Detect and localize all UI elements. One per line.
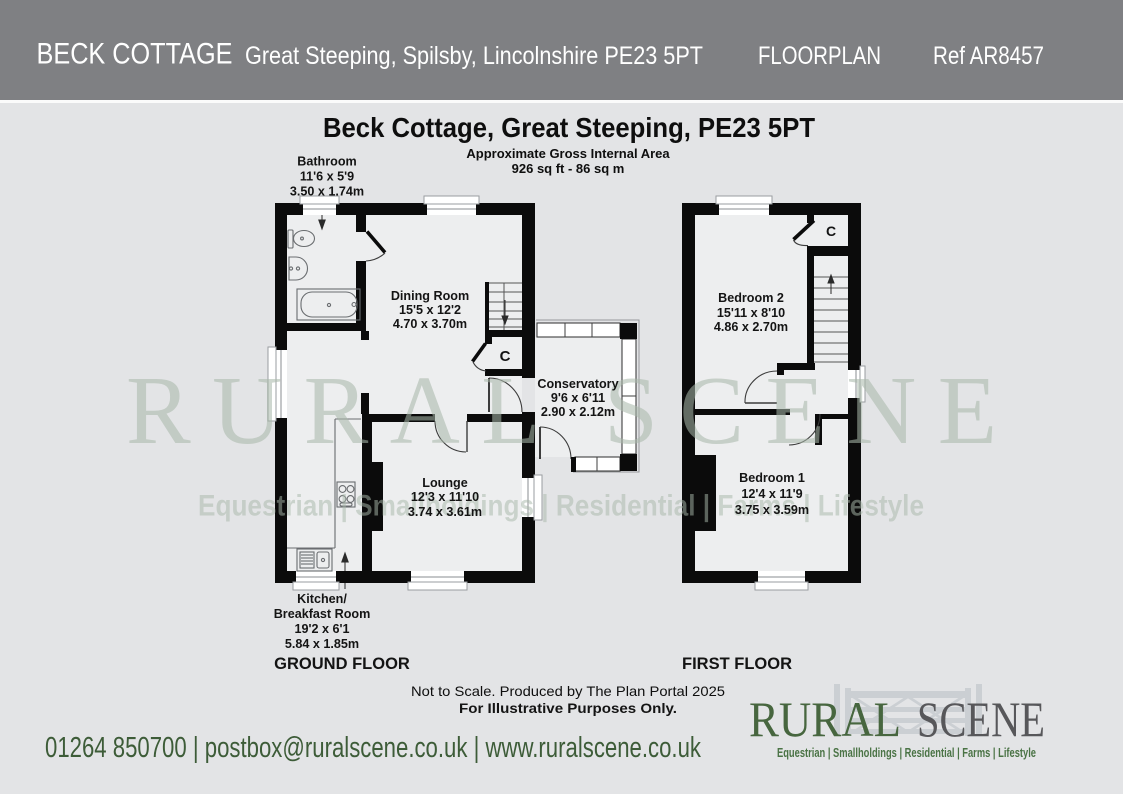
svg-text:19'2 x 6'1: 19'2 x 6'1	[294, 622, 349, 636]
svg-text:12'4 x 11'9: 12'4 x 11'9	[741, 487, 802, 501]
svg-text:15'5 x 12'2: 15'5 x 12'2	[399, 303, 461, 317]
svg-text:Equestrian | Smallholdings | R: Equestrian | Smallholdings | Residential…	[777, 745, 1036, 760]
svg-text:Conservatory: Conservatory	[537, 377, 618, 391]
svg-text:Bedroom 2: Bedroom 2	[718, 291, 784, 305]
svg-text:RURAL: RURAL	[749, 691, 901, 747]
svg-text:Breakfast Room: Breakfast Room	[274, 607, 371, 621]
svg-text:3.50 x 1.74m: 3.50 x 1.74m	[290, 185, 364, 199]
svg-text:11'6 x 5'9: 11'6 x 5'9	[300, 170, 354, 184]
svg-text:C: C	[500, 348, 511, 365]
svg-text:Not to Scale. Produced by The: Not to Scale. Produced by The Plan Porta…	[411, 683, 725, 699]
svg-text:3.75 x 3.59m: 3.75 x 3.59m	[735, 503, 809, 517]
svg-text:Equestrian | Smallholdings | R: Equestrian | Smallholdings | Residential…	[198, 490, 924, 523]
svg-text:01264 850700 | postbox@ruralsc: 01264 850700 | postbox@ruralscene.co.uk …	[45, 732, 701, 764]
svg-text:Dining Room: Dining Room	[391, 289, 469, 303]
svg-text:Beck Cottage, Great Steeping,: Beck Cottage, Great Steeping, PE23 5PT	[323, 112, 815, 143]
svg-text:3.74 x 3.61m: 3.74 x 3.61m	[408, 505, 482, 519]
svg-text:FLOORPLAN: FLOORPLAN	[758, 42, 881, 70]
svg-text:12'3 x 11'10: 12'3 x 11'10	[411, 490, 479, 504]
svg-text:2.90 x 2.12m: 2.90 x 2.12m	[541, 405, 615, 419]
svg-text:9'6 x 6'11: 9'6 x 6'11	[551, 391, 605, 405]
svg-text:5.84 x 1.85m: 5.84 x 1.85m	[285, 637, 359, 651]
svg-text:Lounge: Lounge	[422, 476, 467, 490]
svg-text:BECK COTTAGE: BECK COTTAGE	[37, 38, 233, 71]
svg-text:Great Steeping, Spilsby, Linco: Great Steeping, Spilsby, Lincolnshire PE…	[245, 42, 703, 70]
svg-text:Bathroom: Bathroom	[297, 155, 356, 169]
svg-text:Ref AR8457: Ref AR8457	[933, 42, 1044, 70]
svg-text:Approximate Gross Internal Are: Approximate Gross Internal Area	[466, 146, 670, 161]
svg-text:C: C	[826, 223, 836, 239]
svg-text:Kitchen/: Kitchen/	[297, 592, 347, 606]
svg-text:FIRST FLOOR: FIRST FLOOR	[682, 655, 792, 673]
svg-text:For Illustrative Purposes Only: For Illustrative Purposes Only.	[459, 700, 677, 716]
svg-text:4.70 x 3.70m: 4.70 x 3.70m	[393, 317, 467, 331]
svg-text:GROUND FLOOR: GROUND FLOOR	[274, 655, 410, 673]
svg-text:15'11 x 8'10: 15'11 x 8'10	[717, 306, 785, 320]
svg-text:4.86 x 2.70m: 4.86 x 2.70m	[714, 320, 788, 334]
svg-text:SCENE: SCENE	[917, 691, 1045, 747]
svg-text:926 sq ft - 86 sq m: 926 sq ft - 86 sq m	[512, 161, 625, 176]
svg-text:Bedroom 1: Bedroom 1	[739, 471, 805, 485]
